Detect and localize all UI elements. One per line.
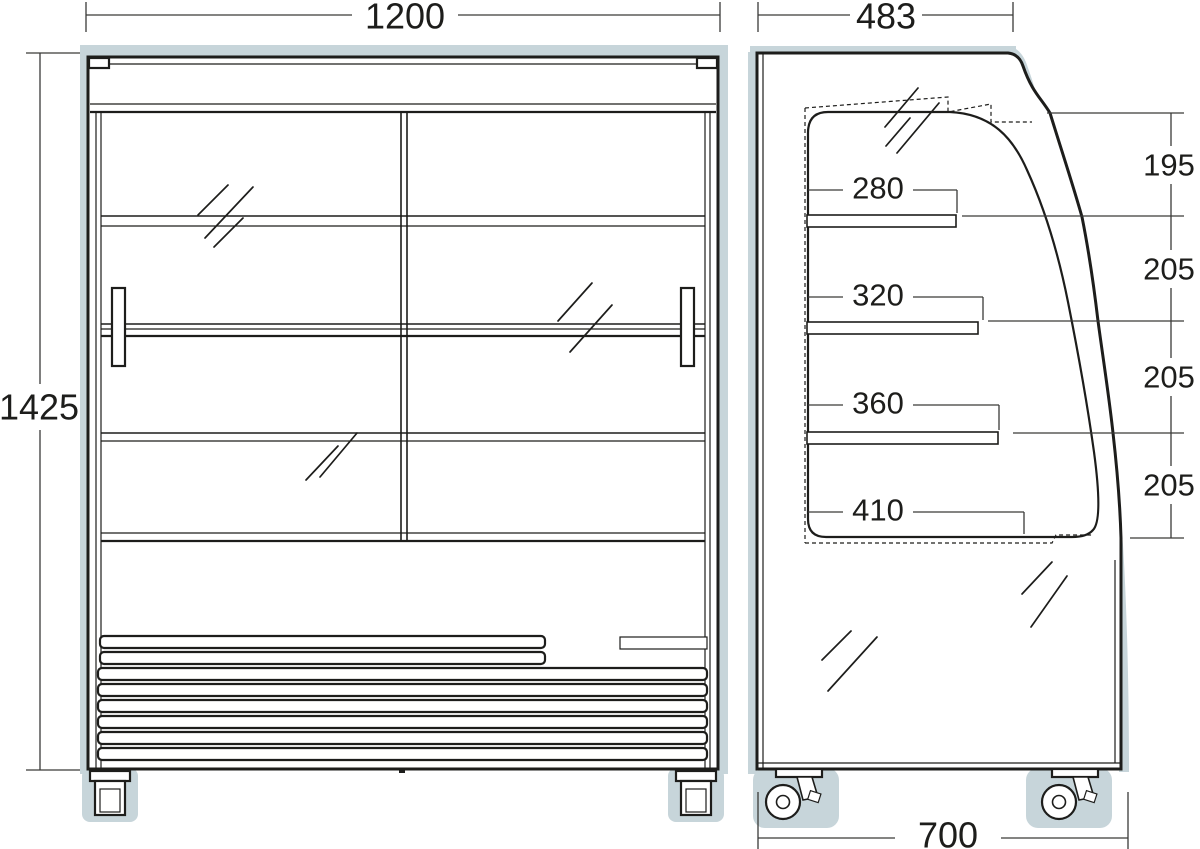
- louver-slat: [98, 700, 707, 712]
- louver-slat: [98, 684, 707, 696]
- shelf-depth-4-value: 410: [852, 493, 904, 528]
- canopy-corner-cap-left: [89, 58, 109, 68]
- spacing-1-value: 195: [1143, 148, 1195, 183]
- side-body-profile: [757, 53, 1121, 769]
- bottom-center-mark: [399, 769, 405, 773]
- dimension-overall-height: 1425: [0, 53, 80, 770]
- louver-slat: [100, 636, 545, 648]
- shelf-handle-right: [681, 288, 694, 366]
- overall-height-value: 1425: [0, 387, 79, 428]
- side-shelf-1: [807, 215, 956, 227]
- technical-drawing-page: 1200 1425 483 700 280 320 36: [0, 0, 1200, 849]
- side-top-depth-value: 483: [856, 0, 916, 37]
- side-shelf-2: [807, 322, 978, 334]
- side-shelf-3: [807, 432, 998, 444]
- louver-slat: [100, 652, 545, 664]
- front-width-value: 1200: [365, 0, 445, 37]
- shelf-depth-3-value: 360: [852, 386, 904, 421]
- badge-plate: [620, 637, 707, 649]
- louver-slat: [98, 732, 707, 744]
- dimension-side-top-depth: 483: [758, 0, 1013, 37]
- front-caster-left: [90, 771, 130, 815]
- shelf-depth-2-value: 320: [852, 278, 904, 313]
- front-caster-right: [676, 771, 716, 815]
- side-view: [748, 46, 1129, 828]
- front-view: [80, 45, 728, 822]
- display-case-dimension-drawing: 1200 1425 483 700 280 320 36: [0, 0, 1200, 849]
- shelf-depth-1-value: 280: [852, 171, 904, 206]
- dimension-front-width: 1200: [86, 0, 720, 37]
- louver-slat: [98, 716, 707, 728]
- louver-slat: [98, 668, 707, 680]
- louver-slat: [98, 748, 707, 760]
- canopy-corner-cap-right: [697, 58, 717, 68]
- spacing-2-value: 205: [1143, 252, 1195, 287]
- spacing-3-value: 205: [1143, 360, 1195, 395]
- side-bottom-depth-value: 700: [918, 815, 978, 849]
- spacing-4-value: 205: [1143, 468, 1195, 503]
- shelf-handle-left: [112, 288, 125, 366]
